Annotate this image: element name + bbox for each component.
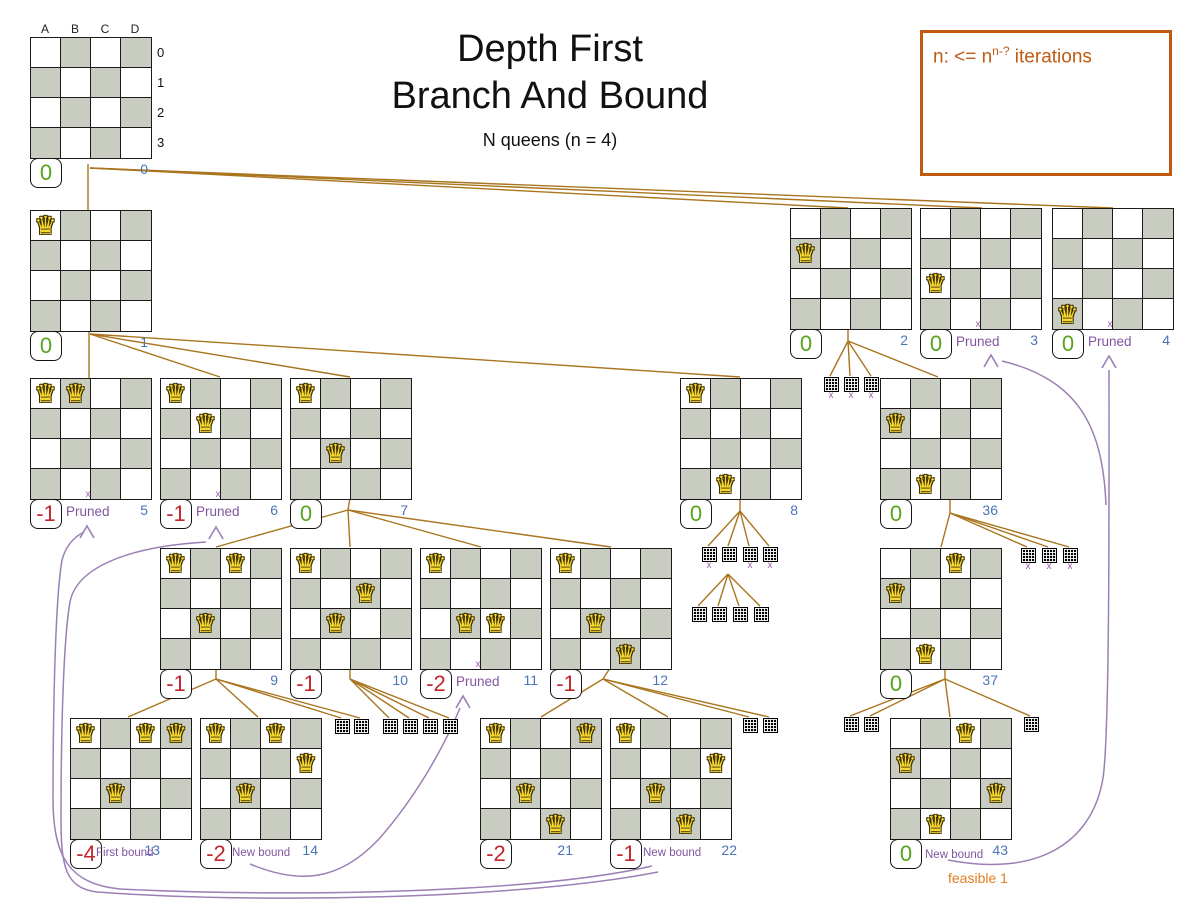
board-cell: [571, 749, 601, 779]
board-cell: [891, 719, 921, 749]
tree-edge: [950, 513, 1048, 547]
prune-arrowhead-icon: [984, 355, 998, 367]
board-cell: [1143, 239, 1173, 269]
board-cell: [971, 609, 1001, 639]
board-cell: ♛: [921, 269, 951, 299]
board-cell: [31, 439, 61, 469]
score-badge: 0: [890, 839, 922, 869]
collapsed-subtree-icon: [443, 719, 458, 734]
queen-icon: ♛: [191, 409, 220, 438]
board-cell: [121, 211, 151, 241]
board-cell: [711, 379, 741, 409]
board-cell: [251, 469, 281, 499]
collapsed-subtree-icon: [844, 717, 859, 732]
board-cell: [881, 469, 911, 499]
score-badge: -1: [160, 499, 192, 529]
board-node-6: ♛♛: [160, 378, 282, 500]
board-cell: [91, 241, 121, 271]
board-cell: [31, 409, 61, 439]
board-cell: [611, 609, 641, 639]
board-cell: [291, 439, 321, 469]
board-cell: [61, 301, 91, 331]
pruned-x-icon: x: [83, 490, 93, 500]
board-cell: [981, 269, 1011, 299]
board-cell: [541, 749, 571, 779]
board-cell: [381, 609, 411, 639]
score-badge: -2: [200, 839, 232, 869]
board-cell: [611, 549, 641, 579]
board-cell: [121, 271, 151, 301]
board-cell: [881, 609, 911, 639]
queen-icon: ♛: [791, 239, 820, 268]
node-id: 14: [288, 842, 318, 858]
tree-edge: [216, 679, 341, 718]
board-cell: [1113, 269, 1143, 299]
board-cell: [161, 439, 191, 469]
board-cell: [941, 609, 971, 639]
board-cell: ♛: [131, 719, 161, 749]
board-cell: [891, 779, 921, 809]
board-cell: [161, 609, 191, 639]
board-cell: [1143, 209, 1173, 239]
board-cell: [381, 469, 411, 499]
note-prefix: n: <= n: [933, 46, 992, 67]
board-cell: [321, 409, 351, 439]
board-cell: ♛: [611, 639, 641, 669]
board-node-0: [30, 37, 152, 159]
board-cell: ♛: [231, 779, 261, 809]
queen-icon: ♛: [711, 469, 740, 499]
board-cell: [71, 749, 101, 779]
board-cell: [481, 749, 511, 779]
board-cell: [511, 809, 541, 839]
board-cell: [131, 749, 161, 779]
board-cell: [161, 809, 191, 839]
prune-arrowhead-icon: [209, 527, 223, 539]
board-cell: [291, 609, 321, 639]
board-node-37: ♛♛♛: [880, 548, 1002, 670]
queen-icon: ♛: [131, 719, 160, 748]
diagram-title: Depth First Branch And Bound N queens (n…: [250, 26, 850, 151]
board-cell: [641, 719, 671, 749]
board-cell: [61, 38, 91, 68]
queen-icon: ♛: [161, 719, 191, 748]
board-cell: [671, 779, 701, 809]
board-cell: ♛: [881, 409, 911, 439]
board-cell: [1053, 269, 1083, 299]
collapsed-subtree-icon: [335, 719, 350, 734]
board-cell: [511, 609, 541, 639]
board-cell: [541, 779, 571, 809]
pruned-label: Pruned: [66, 504, 110, 519]
board-cell: [741, 409, 771, 439]
queen-icon: ♛: [581, 609, 610, 638]
board-cell: [251, 549, 281, 579]
queen-icon: ♛: [231, 779, 260, 808]
score-badge: 0: [680, 499, 712, 529]
board-node-22: ♛♛♛♛: [610, 718, 732, 840]
tree-edge: [90, 168, 848, 208]
board-cell: [321, 549, 351, 579]
board-cell: [351, 469, 381, 499]
note-suffix: iterations: [1010, 46, 1092, 67]
board-cell: [641, 549, 671, 579]
board-cell: [771, 469, 801, 499]
board-cell: [771, 409, 801, 439]
board-node-12: ♛♛♛: [550, 548, 672, 670]
board-cell: [791, 299, 821, 329]
board-cell: [61, 241, 91, 271]
board-cell: ♛: [541, 809, 571, 839]
board-cell: [571, 779, 601, 809]
board-cell: [921, 779, 951, 809]
board-cell: [451, 549, 481, 579]
board-cell: [581, 549, 611, 579]
board-cell: [971, 409, 1001, 439]
board-cell: [161, 749, 191, 779]
board-cell: [221, 609, 251, 639]
board-cell: [911, 549, 941, 579]
board-cell: ♛: [351, 579, 381, 609]
board-cell: ♛: [191, 409, 221, 439]
board-cell: [321, 379, 351, 409]
board-cell: [911, 409, 941, 439]
board-cell: [291, 809, 321, 839]
board-cell: ♛: [481, 609, 511, 639]
board-cell: [641, 809, 671, 839]
board-cell: [121, 128, 151, 158]
board-cell: [981, 209, 1011, 239]
queen-icon: ♛: [201, 719, 230, 748]
board-cell: [971, 579, 1001, 609]
board-cell: ♛: [911, 639, 941, 669]
board-cell: [61, 128, 91, 158]
column-header: B: [69, 22, 81, 36]
board-cell: [981, 749, 1011, 779]
board-node-11: ♛♛♛: [420, 548, 542, 670]
board-cell: [681, 469, 711, 499]
board-cell: [771, 379, 801, 409]
board-node-3: ♛: [920, 208, 1042, 330]
board-cell: [31, 38, 61, 68]
board-cell: ♛: [201, 719, 231, 749]
tree-edge: [941, 513, 950, 547]
board-cell: [941, 579, 971, 609]
board-cell: [161, 639, 191, 669]
board-cell: [1113, 209, 1143, 239]
board-cell: [61, 271, 91, 301]
board-cell: [351, 379, 381, 409]
board-node-8: ♛♛: [680, 378, 802, 500]
board-cell: [451, 579, 481, 609]
board-cell: ♛: [421, 549, 451, 579]
node-id: 2: [878, 332, 908, 348]
board-cell: [91, 38, 121, 68]
node-id: 10: [378, 672, 408, 688]
feasible-label: feasible 1: [948, 870, 1008, 886]
board-cell: [381, 439, 411, 469]
queen-icon: ♛: [951, 719, 980, 748]
board-node-2: ♛: [790, 208, 912, 330]
board-cell: [31, 68, 61, 98]
board-cell: [611, 579, 641, 609]
board-cell: [161, 409, 191, 439]
score-badge: 0: [30, 331, 62, 361]
board-cell: ♛: [641, 779, 671, 809]
board-cell: [951, 209, 981, 239]
score-badge: -2: [480, 839, 512, 869]
board-cell: ♛: [291, 379, 321, 409]
collapsed-subtree-icon: [1024, 717, 1039, 732]
board-cell: [921, 749, 951, 779]
board-cell: [201, 779, 231, 809]
queen-icon: ♛: [641, 779, 670, 808]
queen-icon: ♛: [541, 809, 570, 839]
board-cell: [911, 579, 941, 609]
board-cell: [891, 809, 921, 839]
score-badge: 0: [790, 329, 822, 359]
score-badge: 0: [1052, 329, 1084, 359]
board-cell: ♛: [891, 749, 921, 779]
board-cell: [61, 439, 91, 469]
board-cell: [581, 579, 611, 609]
node-id: 1: [118, 334, 148, 350]
queen-icon: ♛: [191, 609, 220, 638]
pruned-x-icon: x: [1105, 320, 1115, 330]
board-cell: [91, 469, 121, 499]
queen-icon: ♛: [291, 379, 320, 408]
tree-edge: [945, 679, 950, 717]
board-cell: [551, 639, 581, 669]
board-cell: ♛: [61, 379, 91, 409]
board-cell: [921, 209, 951, 239]
board-cell: ♛: [711, 469, 741, 499]
board-cell: [771, 439, 801, 469]
board-cell: [91, 68, 121, 98]
row-header: 0: [157, 45, 164, 60]
board-cell: [641, 639, 671, 669]
board-cell: ♛: [581, 609, 611, 639]
board-cell: [91, 211, 121, 241]
board-cell: [581, 639, 611, 669]
queen-icon: ♛: [71, 719, 100, 748]
tree-edge: [603, 679, 769, 717]
queen-icon: ♛: [571, 719, 601, 748]
prune-arrowhead-icon: [1102, 356, 1116, 368]
board-cell: [1083, 269, 1113, 299]
board-cell: [511, 549, 541, 579]
board-cell: [381, 409, 411, 439]
board-node-13: ♛♛♛♛: [70, 718, 192, 840]
bound-label: New bound: [925, 849, 983, 861]
board-cell: [101, 749, 131, 779]
board-cell: [881, 549, 911, 579]
tree-edge: [708, 511, 740, 546]
note-superscript: n-?: [992, 44, 1009, 58]
board-cell: [161, 469, 191, 499]
board-cell: ♛: [101, 779, 131, 809]
board-cell: [821, 239, 851, 269]
board-cell: [1011, 299, 1041, 329]
board-cell: [291, 719, 321, 749]
board-cell: [201, 809, 231, 839]
pruned-x-icon: x: [765, 561, 775, 571]
board-cell: [821, 299, 851, 329]
board-cell: [511, 579, 541, 609]
pruned-label: Pruned: [956, 334, 1000, 349]
queen-icon: ♛: [511, 779, 540, 808]
queen-icon: ♛: [161, 379, 190, 408]
node-id: 11: [508, 672, 538, 688]
iterations-note-box: n: <= nn-? iterations: [920, 30, 1172, 176]
board-cell: [701, 779, 731, 809]
board-cell: [91, 271, 121, 301]
queen-icon: ♛: [351, 579, 380, 608]
node-id: 9: [248, 672, 278, 688]
node-id: 5: [118, 502, 148, 518]
board-cell: [481, 809, 511, 839]
queen-icon: ♛: [291, 749, 321, 778]
queen-icon: ♛: [881, 579, 910, 608]
board-cell: [191, 439, 221, 469]
title-line-1: Depth First: [250, 26, 850, 73]
queen-icon: ♛: [31, 211, 60, 240]
board-cell: [1113, 299, 1143, 329]
board-cell: ♛: [481, 719, 511, 749]
queen-icon: ♛: [421, 549, 450, 578]
board-cell: [221, 579, 251, 609]
queen-icon: ♛: [481, 719, 510, 748]
collapsed-subtree-icon: [692, 607, 707, 622]
board-cell: [261, 779, 291, 809]
queen-icon: ♛: [31, 379, 60, 408]
pruned-x-icon: x: [1023, 562, 1033, 572]
node-id: 3: [1008, 332, 1038, 348]
pruned-x-icon: x: [473, 660, 483, 670]
pruned-label: Pruned: [196, 504, 240, 519]
board-cell: [851, 269, 881, 299]
queen-icon: ♛: [881, 409, 910, 438]
board-node-43: ♛♛♛♛: [890, 718, 1012, 840]
board-cell: [911, 439, 941, 469]
tree-edge: [950, 513, 1027, 547]
board-cell: [851, 239, 881, 269]
board-cell: ♛: [321, 609, 351, 639]
board-node-5: ♛♛: [30, 378, 152, 500]
bound-label: New bound: [232, 847, 290, 859]
board-cell: [1143, 269, 1173, 299]
board-cell: [251, 609, 281, 639]
collapsed-subtree-icon: [864, 717, 879, 732]
pruned-x-icon: x: [973, 320, 983, 330]
board-cell: [121, 301, 151, 331]
board-cell: [101, 719, 131, 749]
queen-icon: ♛: [321, 439, 350, 468]
board-cell: [481, 779, 511, 809]
board-cell: [231, 809, 261, 839]
node-id: 12: [638, 672, 668, 688]
board-cell: ♛: [571, 719, 601, 749]
node-id: 0: [118, 161, 148, 177]
board-cell: ♛: [221, 549, 251, 579]
board-cell: [261, 749, 291, 779]
tree-edge: [950, 513, 1069, 547]
board-cell: [701, 719, 731, 749]
board-cell: ♛: [791, 239, 821, 269]
board-cell: [711, 409, 741, 439]
board-cell: ♛: [451, 609, 481, 639]
board-cell: [911, 379, 941, 409]
board-cell: [101, 809, 131, 839]
board-node-4: ♛: [1052, 208, 1174, 330]
node-id: 8: [768, 502, 798, 518]
board-cell: [131, 779, 161, 809]
board-cell: [161, 779, 191, 809]
board-cell: [221, 439, 251, 469]
row-header: 3: [157, 135, 164, 150]
board-cell: [711, 439, 741, 469]
board-cell: [551, 609, 581, 639]
pruned-x-icon: x: [213, 490, 223, 500]
board-cell: [911, 609, 941, 639]
tree-edge: [348, 510, 350, 547]
board-node-36: ♛♛: [880, 378, 1002, 500]
board-cell: ♛: [701, 749, 731, 779]
board-cell: [551, 579, 581, 609]
score-badge: -1: [30, 499, 62, 529]
queen-icon: ♛: [681, 379, 710, 408]
title-line-2: Branch And Bound: [250, 73, 850, 120]
board-node-9: ♛♛♛: [160, 548, 282, 670]
board-cell: [351, 409, 381, 439]
board-cell: [1053, 239, 1083, 269]
board-cell: [791, 209, 821, 239]
board-cell: ♛: [551, 549, 581, 579]
board-cell: [971, 549, 1001, 579]
row-header: 2: [157, 105, 164, 120]
board-cell: [941, 379, 971, 409]
board-cell: [91, 439, 121, 469]
board-node-10: ♛♛♛: [290, 548, 412, 670]
column-header: A: [39, 22, 51, 36]
row-header: 1: [157, 75, 164, 90]
pruned-x-icon: x: [1044, 562, 1054, 572]
collapsed-subtree-icon: [354, 719, 369, 734]
score-badge: 0: [880, 669, 912, 699]
board-cell: [261, 809, 291, 839]
dfbb-diagram: Depth First Branch And Bound N queens (n…: [0, 0, 1200, 900]
prune-arrowhead-icon: [80, 526, 94, 538]
board-cell: [981, 809, 1011, 839]
board-cell: [131, 809, 161, 839]
pruned-x-icon: x: [1065, 562, 1075, 572]
board-cell: [741, 439, 771, 469]
board-cell: ♛: [261, 719, 291, 749]
board-cell: [611, 779, 641, 809]
board-cell: [251, 579, 281, 609]
board-cell: [941, 639, 971, 669]
board-cell: [541, 719, 571, 749]
queen-icon: ♛: [481, 609, 510, 638]
board-cell: ♛: [981, 779, 1011, 809]
board-cell: [981, 299, 1011, 329]
board-cell: [881, 639, 911, 669]
board-cell: [61, 409, 91, 439]
pruned-x-icon: x: [704, 561, 714, 571]
board-cell: ♛: [941, 549, 971, 579]
board-cell: [351, 549, 381, 579]
node-id: 4: [1140, 332, 1170, 348]
